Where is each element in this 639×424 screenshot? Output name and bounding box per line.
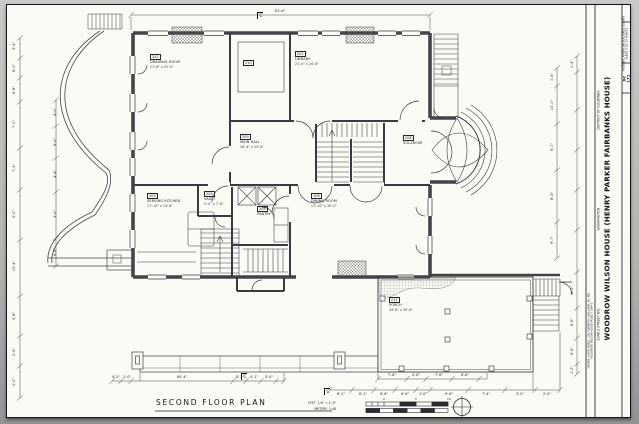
survey-number: DC 171 xyxy=(623,64,632,92)
sheet-title: WOODROW WILSON HOUSE (HENRY PARKER FAIRB… xyxy=(604,90,613,340)
credit-lines: DRAWN: LAFFE ARNELL, CRS, KENNETH L WILL… xyxy=(587,245,594,415)
address: 2340 S STREET NW xyxy=(596,308,600,340)
city: WASHINGTON xyxy=(596,207,600,230)
meters-scale-label: METERS 1:48 xyxy=(294,407,336,411)
sheet-location: 2340 S STREET NW WASHINGTON DISTRICT OF … xyxy=(595,90,600,340)
drawing-sheet xyxy=(6,4,631,418)
plan-title: SECOND FLOOR PLAN xyxy=(156,398,267,407)
scanned-drawing-page: { "sheet": { "plan_title": "SECOND FLOOR… xyxy=(0,0,639,424)
feet-scale-label: FEET 1/4" = 1'-0" xyxy=(294,401,336,405)
state: DISTRICT OF COLUMBIA xyxy=(596,90,600,129)
habs-survey-stamp: HISTORIC AMERICAN BUILDINGS SURVEY SHEET… xyxy=(623,15,632,71)
